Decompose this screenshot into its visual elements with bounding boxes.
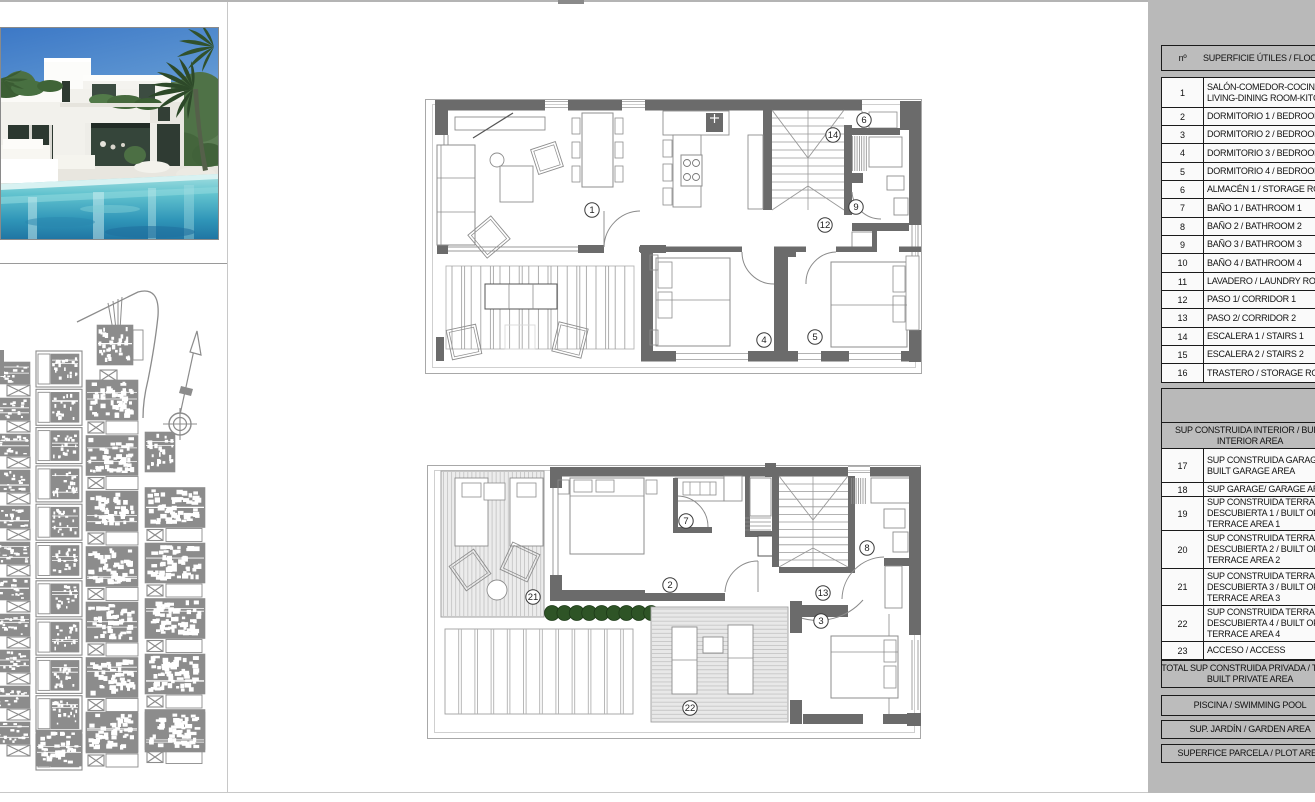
svg-text:14: 14 [828, 130, 839, 141]
svg-text:8: 8 [864, 543, 869, 554]
svg-text:3: 3 [818, 616, 823, 627]
svg-text:12: 12 [820, 220, 831, 231]
svg-text:1: 1 [589, 205, 594, 216]
svg-text:21: 21 [528, 592, 539, 603]
svg-text:2: 2 [667, 580, 672, 591]
svg-text:9: 9 [853, 202, 858, 213]
svg-text:6: 6 [861, 115, 866, 126]
svg-text:22: 22 [685, 703, 696, 714]
svg-text:5: 5 [812, 332, 817, 343]
svg-text:4: 4 [761, 335, 766, 346]
svg-text:7: 7 [683, 516, 688, 527]
svg-text:13: 13 [818, 588, 829, 599]
